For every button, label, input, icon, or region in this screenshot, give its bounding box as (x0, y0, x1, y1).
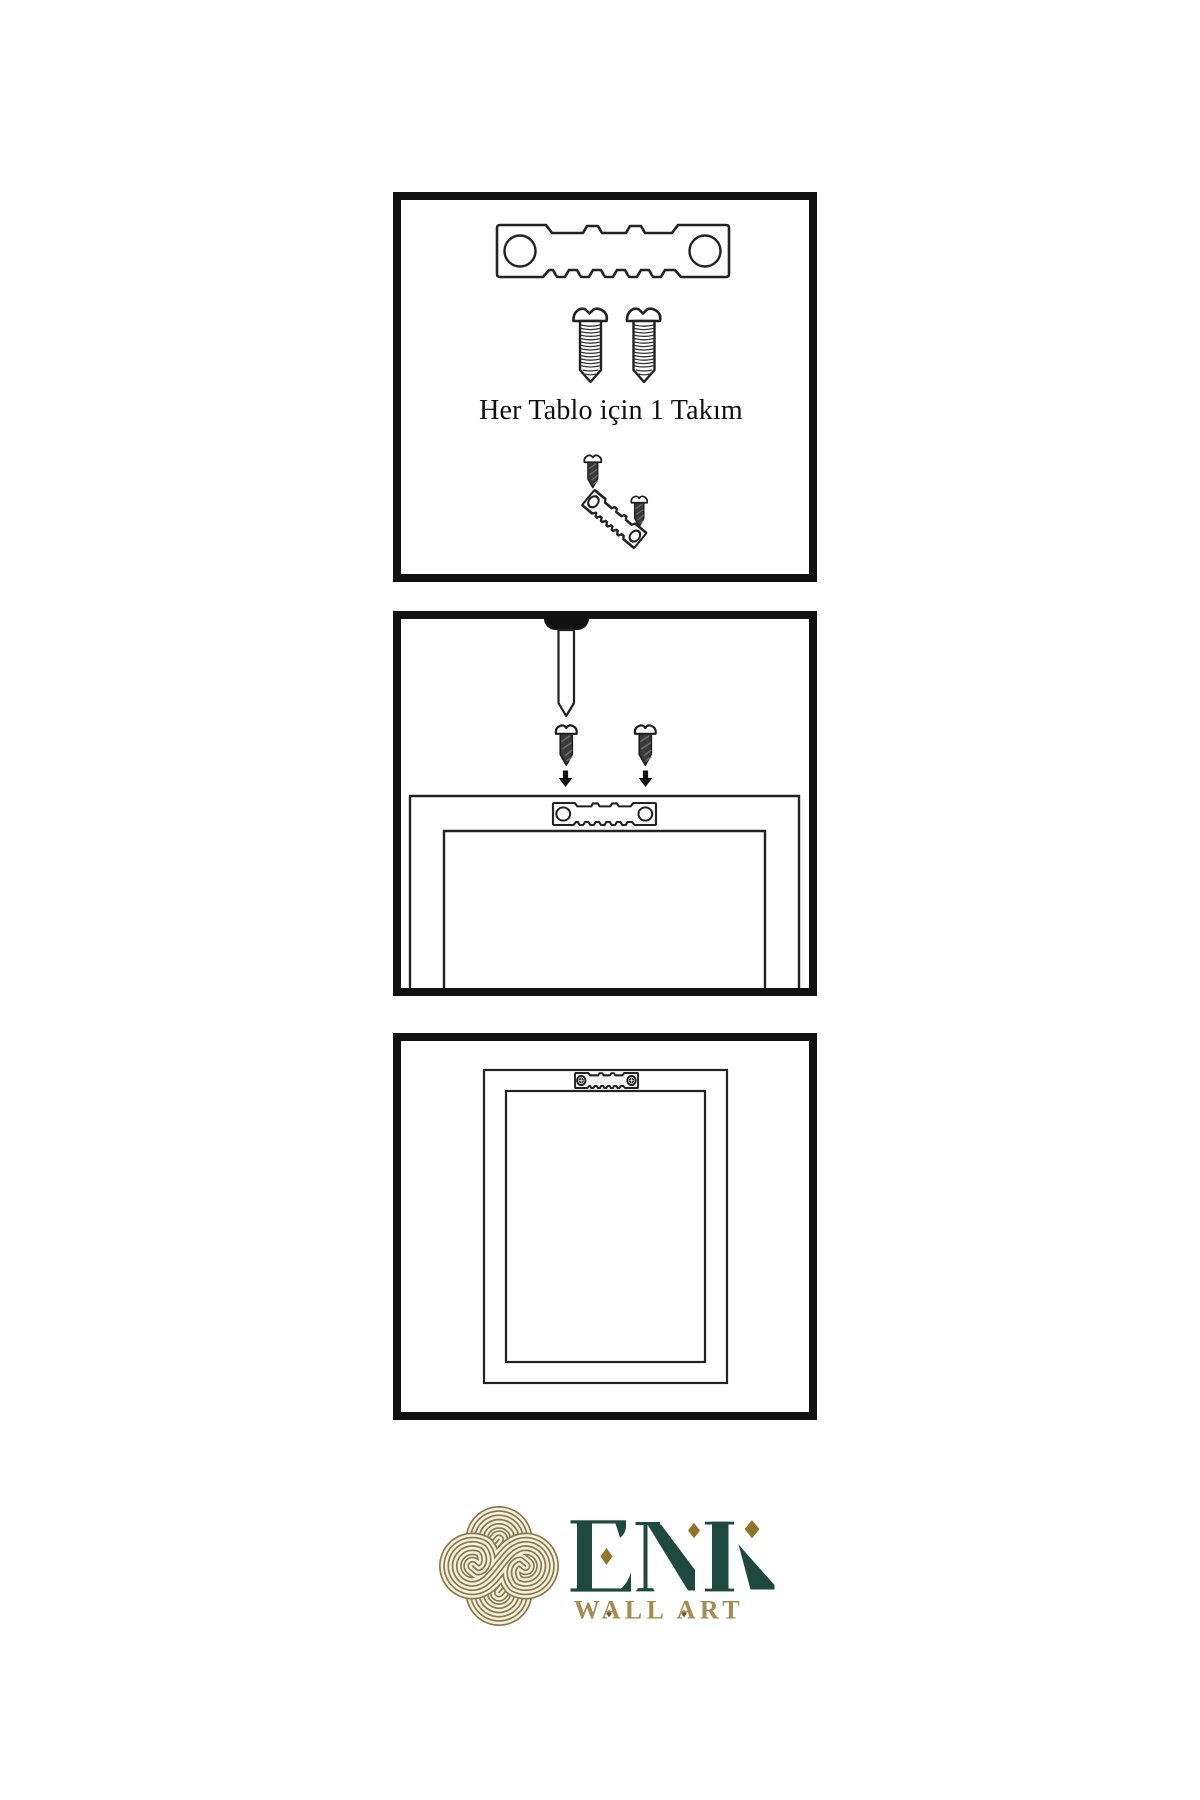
svg-text:WALL ART: WALL ART (574, 1596, 744, 1625)
svg-text:Her Tablo için 1 Takım: Her Tablo için 1 Takım (479, 395, 743, 426)
